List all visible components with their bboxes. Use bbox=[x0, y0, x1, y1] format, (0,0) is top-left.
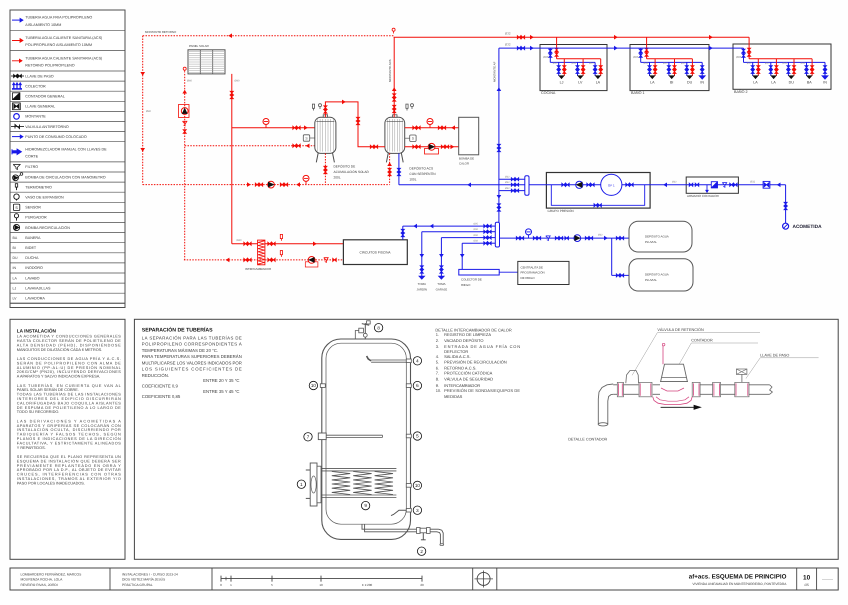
svg-text:INSTALACIONES, TRAMOS AL EXTER: INSTALACIONES, TRAMOS AL EXTERIOR Y/O bbox=[17, 477, 121, 481]
svg-text:TODO SU RECORRIDO.: TODO SU RECORRIDO. bbox=[17, 410, 60, 414]
svg-text:SENSOR: SENSOR bbox=[25, 206, 41, 210]
svg-text:MULTIPLICARSE LOS VALORES INDI: MULTIPLICARSE LOS VALORES INDICADOS POR bbox=[142, 361, 242, 366]
svg-text:CRUCES, INTERFERENCIAS CON OTR: CRUCES, INTERFERENCIAS CON OTRAS bbox=[17, 473, 121, 477]
svg-text:ARMARIO CONTADOR: ARMARIO CONTADOR bbox=[687, 194, 720, 198]
svg-text:10.: 10. bbox=[436, 388, 442, 393]
svg-text:MEDIDAS: MEDIDAS bbox=[444, 394, 463, 399]
svg-text:LA: LA bbox=[650, 81, 655, 85]
svg-text:SALIDA A.C.S.: SALIDA A.C.S. bbox=[444, 354, 470, 359]
svg-text:TERMOMETRO: TERMOMETRO bbox=[25, 185, 52, 189]
svg-text:CONTADOR GENERAL: CONTADOR GENERAL bbox=[25, 95, 64, 99]
svg-text:Y REPARTIDOS.: Y REPARTIDOS. bbox=[17, 446, 46, 450]
svg-text:ALTA DENSIDAD (PEHD), DISPONIÉ: ALTA DENSIDAD (PEHD), DISPONIÉNDOSE bbox=[17, 342, 121, 347]
svg-text:LAS TUBERÍAS EN CUBIERTA QUE: LAS TUBERÍAS EN CUBIERTA QUE VAN AL bbox=[17, 383, 121, 388]
svg-text:Ø32: Ø32 bbox=[505, 187, 510, 190]
svg-text:COLECTOR DE: COLECTOR DE bbox=[461, 277, 482, 281]
svg-text:LA ACOMETIDA Y CONDUCCIONES GE: LA ACOMETIDA Y CONDUCCIONES GENERALES bbox=[17, 335, 121, 339]
svg-text:VÁLVULA DE RETENCIÓN: VÁLVULA DE RETENCIÓN bbox=[657, 327, 704, 332]
svg-text:LV: LV bbox=[578, 81, 583, 85]
svg-text:Ø40: Ø40 bbox=[235, 80, 240, 83]
svg-text:FILTRO: FILTRO bbox=[25, 165, 38, 169]
svg-text:PURGADOR: PURGADOR bbox=[25, 216, 47, 220]
svg-text:TUBERIA AGUA FRIA POLIPROPILEN: TUBERIA AGUA FRIA POLIPROPILENO bbox=[25, 16, 92, 20]
svg-text:REDUCCIÓN.: REDUCCIÓN. bbox=[142, 373, 169, 378]
svg-text:LLAVE DE PASO: LLAVE DE PASO bbox=[25, 74, 53, 78]
svg-text:DUCHA: DUCHA bbox=[25, 256, 39, 260]
svg-text:Ø32: Ø32 bbox=[672, 180, 677, 183]
svg-text:LA INSTALACIÓN: LA INSTALACIÓN bbox=[17, 327, 57, 333]
svg-text:APARATOS Y GRIFERÍAS SE COLOCA: APARATOS Y GRIFERÍAS SE COLOCARÁN CON bbox=[17, 423, 121, 428]
svg-text:IN: IN bbox=[823, 81, 827, 85]
svg-text:SERÁN DE POLIPROPILENO CON ALM: SERÁN DE POLIPROPILENO CON ALMA DE bbox=[17, 360, 121, 365]
svg-text:INTERCAMBIADOR: INTERCAMBIADOR bbox=[245, 267, 271, 271]
svg-text:PREVISIÓN DE RECIRCULACIÓN: PREVISIÓN DE RECIRCULACIÓN bbox=[444, 360, 507, 365]
svg-text:LAVABO: LAVABO bbox=[25, 276, 39, 280]
svg-text:PLUVIAL: PLUVIAL bbox=[645, 278, 657, 282]
svg-text:LJ: LJ bbox=[560, 81, 564, 85]
svg-text:Ø32: Ø32 bbox=[598, 233, 603, 236]
svg-text:Ø32: Ø32 bbox=[505, 31, 511, 35]
svg-text:Ø40: Ø40 bbox=[187, 80, 192, 83]
svg-text:10: 10 bbox=[803, 574, 811, 581]
svg-text:LA SEPARACIÓN PARA LAS TUBERÍA: LA SEPARACIÓN PARA LAS TUBERÍAS DE bbox=[142, 335, 242, 340]
svg-text:DU: DU bbox=[687, 81, 693, 85]
svg-text:CON SERPENTÍN: CON SERPENTÍN bbox=[409, 172, 436, 176]
svg-text:BAÑO 2: BAÑO 2 bbox=[734, 89, 748, 94]
svg-text:PREVIAMENTE REPLANTEADO EN OBR: PREVIAMENTE REPLANTEADO EN OBRA Y bbox=[17, 464, 121, 468]
svg-text:LAS CONDUCCIONES DE AGUA FRÍA: LAS CONDUCCIONES DE AGUA FRÍA Y A.C.S. bbox=[17, 356, 121, 361]
svg-text:Ø32: Ø32 bbox=[473, 228, 478, 231]
svg-text:COLECTOR: COLECTOR bbox=[25, 84, 46, 88]
svg-text:FACULTATIVA, Y ESTRICTAMENTE A: FACULTATIVA, Y ESTRICTAMENTE ALINEADOS bbox=[17, 441, 121, 445]
svg-text:TOMA: TOMA bbox=[437, 282, 445, 286]
svg-text:Ø12: Ø12 bbox=[589, 62, 594, 65]
svg-text:Ø40: Ø40 bbox=[237, 239, 242, 242]
svg-text:BIDET: BIDET bbox=[25, 246, 37, 250]
svg-text:PLANOS E INDICACIONES DE LA DI: PLANOS E INDICACIONES DE LA DIRECCIÓN bbox=[17, 436, 121, 441]
svg-text:SE RECUERDA QUE EL PLANO REPRE: SE RECUERDA QUE EL PLANO REPRESENTA UN bbox=[17, 455, 121, 459]
svg-text:COCINA: COCINA bbox=[541, 91, 556, 95]
svg-text:VALVULA ANTIRETORNO: VALVULA ANTIRETORNO bbox=[25, 125, 69, 129]
svg-text:Ø32: Ø32 bbox=[473, 240, 478, 243]
svg-text:DU: DU bbox=[789, 81, 795, 85]
svg-text:PROGRAMACIÓN: PROGRAMACIÓN bbox=[521, 271, 545, 275]
svg-text:BA: BA bbox=[13, 236, 18, 240]
svg-text:Ø12: Ø12 bbox=[801, 62, 806, 65]
svg-text:MANGUITOS DE DILATACIÓN CADA 6: MANGUITOS DE DILATACIÓN CADA 6 METROS. bbox=[17, 347, 102, 352]
svg-text:DU: DU bbox=[13, 256, 19, 260]
svg-text:2.: 2. bbox=[436, 338, 439, 343]
svg-text:PUNTO DE CONSUMO COLOCADO: PUNTO DE CONSUMO COLOCADO bbox=[25, 135, 87, 139]
svg-text:Ø12: Ø12 bbox=[663, 62, 668, 65]
svg-text:CORTE: CORTE bbox=[25, 155, 38, 159]
svg-text:Ø25: Ø25 bbox=[633, 55, 639, 59]
svg-text:6.: 6. bbox=[436, 365, 439, 370]
svg-text:20KG/CM² (PN20), INCLUYENDO DE: 20KG/CM² (PN20), INCLUYENDO DERIVACIONES bbox=[17, 370, 121, 374]
svg-text:DE ESPUMA DE POLIETILENO A LO: DE ESPUMA DE POLIETILENO A LO LARGO DE bbox=[17, 406, 121, 410]
svg-text:IN: IN bbox=[13, 266, 17, 270]
svg-text:RIEGO: RIEGO bbox=[461, 283, 471, 287]
svg-text:APROBADO POR LA D.F., AL OBJET: APROBADO POR LA D.F., AL OBJETO DE EVITA… bbox=[17, 468, 121, 472]
svg-text:COEFICIENTE 0,9: COEFICIENTE 0,9 bbox=[142, 384, 179, 389]
svg-text:TEMPERATURAS MÁXIMAS DE 20 °C.: TEMPERATURAS MÁXIMAS DE 20 °C. bbox=[142, 348, 218, 353]
svg-text:af+acs. ESQUEMA DE PRINCIPIO: af+acs. ESQUEMA DE PRINCIPIO bbox=[689, 573, 787, 580]
svg-text:DIOS VEITEZ MARÍA JESÚS: DIOS VEITEZ MARÍA JESÚS bbox=[122, 578, 166, 582]
svg-text:DEPÓSITO AGUA: DEPÓSITO AGUA bbox=[645, 273, 669, 277]
svg-text:INODORO: INODORO bbox=[25, 266, 43, 270]
svg-text:ENTRE 35 Y 45 °C: ENTRE 35 Y 45 °C bbox=[203, 389, 239, 394]
svg-text:TODAS LAS TUBERÍAS DE LAS INST: TODAS LAS TUBERÍAS DE LAS INSTALACIONES bbox=[17, 392, 121, 397]
svg-text:ENTRE 20 Y 35 °C: ENTRE 20 Y 35 °C bbox=[203, 378, 239, 383]
svg-text:HASTA COLECTOR SERÁN DE POLIET: HASTA COLECTOR SERÁN DE POLIETILENO DE bbox=[17, 338, 121, 343]
svg-text:Ø12: Ø12 bbox=[553, 62, 558, 65]
svg-text:DEPÓSITO AGUA: DEPÓSITO AGUA bbox=[645, 235, 669, 239]
svg-text:GRUPO PRESIÓN: GRUPO PRESIÓN bbox=[548, 209, 574, 213]
svg-text:TABIQUERÍA Y FALSOS TECHOS, SE: TABIQUERÍA Y FALSOS TECHOS, SEGÚN bbox=[17, 432, 121, 437]
svg-text:Ø32: Ø32 bbox=[750, 181, 755, 184]
svg-text:PLUVIAL: PLUVIAL bbox=[645, 240, 657, 244]
svg-text:HIDROMEZCLADOR MANUAL CON LLAV: HIDROMEZCLADOR MANUAL CON LLAVES DE bbox=[25, 147, 107, 151]
svg-text:LA: LA bbox=[753, 81, 758, 85]
svg-text:4.: 4. bbox=[436, 354, 439, 359]
svg-text:Ø25: Ø25 bbox=[736, 55, 742, 59]
svg-text:MOURENZA ROCHA, LOLA: MOURENZA ROCHA, LOLA bbox=[21, 578, 64, 582]
svg-text:GP 1: GP 1 bbox=[608, 183, 615, 187]
svg-text:BAÑO 1: BAÑO 1 bbox=[631, 90, 645, 95]
svg-text:POLIPROPILENO AISLAMIENTO 10MM: POLIPROPILENO AISLAMIENTO 10MM bbox=[25, 43, 92, 47]
svg-text:CIRCUITOS PISCINA: CIRCUITOS PISCINA bbox=[359, 251, 391, 255]
svg-text:BI: BI bbox=[13, 246, 16, 250]
svg-text:RETORNO POLIPROPILENO: RETORNO POLIPROPILENO bbox=[25, 64, 74, 68]
svg-text:PANEL SOLAR: PANEL SOLAR bbox=[189, 44, 209, 48]
svg-text:REGISTRO DE LIMPIEZA: REGISTRO DE LIMPIEZA bbox=[444, 332, 491, 337]
svg-text:7.: 7. bbox=[436, 371, 439, 376]
svg-text:LA: LA bbox=[13, 276, 18, 280]
svg-text:VIVIENDA UNIFAMILIAR EN MONTEP: VIVIENDA UNIFAMILIAR EN MONTEPORREIRO, P… bbox=[692, 582, 787, 586]
svg-text:10: 10 bbox=[319, 583, 323, 587]
svg-text:ALUMINIO (PP-AL-U) DE PRESIÓN: ALUMINIO (PP-AL-U) DE PRESIÓN NOMINAL bbox=[17, 365, 121, 370]
svg-text:20: 20 bbox=[420, 583, 424, 587]
svg-text:BA: BA bbox=[807, 81, 812, 85]
svg-text:1.: 1. bbox=[436, 332, 439, 337]
svg-text:/25: /25 bbox=[804, 583, 809, 587]
svg-text:INSTALACIÓN OCULTA, DISCURRIEN: INSTALACIÓN OCULTA, DISCURRIENDO POR bbox=[17, 427, 121, 432]
svg-text:10: 10 bbox=[311, 383, 317, 388]
svg-text:3.: 3. bbox=[436, 344, 439, 349]
svg-text:Ø12: Ø12 bbox=[572, 62, 577, 65]
svg-text:DE RIEGO: DE RIEGO bbox=[521, 276, 536, 280]
svg-text:LV: LV bbox=[13, 297, 18, 301]
svg-text:BOMBA RECIRCULACION: BOMBA RECIRCULACION bbox=[25, 226, 70, 230]
svg-text:VACIADO DEPÓSITO: VACIADO DEPÓSITO bbox=[444, 338, 483, 343]
svg-text:PREVISIÓN DE SONDAS/EQUIPOS DE: PREVISIÓN DE SONDAS/EQUIPOS DE bbox=[444, 388, 520, 393]
svg-text:Ø25: Ø25 bbox=[473, 223, 478, 226]
svg-text:CALORIFUGADAS BAJO COQUILLA AI: CALORIFUGADAS BAJO COQUILLA AISLANTES bbox=[17, 401, 121, 405]
svg-text:LAVAVAJILLAS: LAVAVAJILLAS bbox=[25, 286, 51, 290]
svg-text:VASO DE EXPANSION: VASO DE EXPANSION bbox=[25, 196, 64, 200]
svg-text:10: 10 bbox=[415, 483, 421, 488]
svg-text:MONTANTE RETORNO: MONTANTE RETORNO bbox=[145, 30, 177, 34]
svg-text:POLIPROPILENO CORRESPONDIENTES: POLIPROPILENO CORRESPONDIENTES A bbox=[142, 342, 242, 347]
svg-text:AISLAMIENTO 10MM: AISLAMIENTO 10MM bbox=[25, 23, 61, 27]
svg-text:LJ: LJ bbox=[13, 286, 17, 290]
svg-text:LA: LA bbox=[596, 81, 601, 85]
svg-text:Ø12: Ø12 bbox=[782, 62, 787, 65]
svg-text:LOS SIGUIENTES COEFICIENTES DE: LOS SIGUIENTES COEFICIENTES DE bbox=[142, 367, 242, 372]
svg-text:MONTANTE: MONTANTE bbox=[25, 115, 46, 119]
svg-text:Ø40: Ø40 bbox=[146, 110, 151, 113]
svg-text:LLAVE GENERAL: LLAVE GENERAL bbox=[25, 105, 55, 109]
svg-text:INTERIORES DEL EDIFICIO DISCUR: INTERIORES DEL EDIFICIO DISCURRIRÁN bbox=[17, 396, 121, 401]
svg-text:E 1:200: E 1:200 bbox=[362, 583, 373, 587]
svg-text:Ø12: Ø12 bbox=[644, 62, 649, 65]
svg-text:PRÁCTICA GRUPAL: PRÁCTICA GRUPAL bbox=[122, 583, 153, 587]
svg-text:TUBERIA AGUA CALIENTE SANITARI: TUBERIA AGUA CALIENTE SANITARIA (ACS) bbox=[25, 36, 102, 40]
svg-text:TUBERIA AGUA CALIENTE SANITARI: TUBERIA AGUA CALIENTE SANITARIA (ACS) bbox=[25, 56, 102, 60]
svg-text:CALOR: CALOR bbox=[459, 162, 469, 166]
svg-text:BOMBA DE CIRCULACION CON MANOM: BOMBA DE CIRCULACION CON MANOMETRO bbox=[25, 175, 105, 179]
svg-text:LOMBARDERO FERNÁNDEZ, MARCOS: LOMBARDERO FERNÁNDEZ, MARCOS bbox=[21, 572, 83, 576]
svg-text:PANEL SOLAR SERÁN DE COBRE.: PANEL SOLAR SERÁN DE COBRE. bbox=[17, 387, 79, 392]
svg-text:CENTRALITA DE: CENTRALITA DE bbox=[521, 265, 544, 269]
svg-text:JARDÍN: JARDÍN bbox=[417, 288, 427, 292]
svg-text:LLAVE DE PASO: LLAVE DE PASO bbox=[760, 353, 789, 357]
svg-text:200L: 200L bbox=[334, 176, 341, 180]
svg-text:BANERA: BANERA bbox=[25, 236, 41, 240]
svg-text:Ø12: Ø12 bbox=[765, 62, 770, 65]
svg-text:5.: 5. bbox=[436, 360, 439, 365]
svg-text:LAVADORA: LAVADORA bbox=[25, 297, 45, 301]
svg-text:ACOMETIDA: ACOMETIDA bbox=[793, 224, 823, 230]
svg-text:BOMBA DE: BOMBA DE bbox=[459, 157, 474, 161]
svg-text:DETALLE CONTADOR: DETALLE CONTADOR bbox=[568, 438, 607, 442]
svg-text:GARAJE: GARAJE bbox=[436, 288, 448, 292]
svg-text:BI: BI bbox=[670, 81, 673, 85]
svg-text:PASO POR LOCALES INADECUADOS.: PASO POR LOCALES INADECUADOS. bbox=[17, 481, 85, 485]
svg-text:COEFICIENTE 0,85: COEFICIENTE 0,85 bbox=[142, 394, 181, 399]
svg-text:A APARATOS Y SALVO INDICACIÓN: A APARATOS Y SALVO INDICACIÓN EXPRESA. bbox=[17, 374, 101, 379]
svg-text:REVEIRO RIVAS, JORDI: REVEIRO RIVAS, JORDI bbox=[21, 583, 58, 587]
svg-text:Ø32: Ø32 bbox=[505, 181, 510, 184]
svg-text:PARA TEMPERATURAS SUPERIORES D: PARA TEMPERATURAS SUPERIORES DEBERÁN bbox=[142, 354, 242, 359]
svg-text:MONTANTE AF: MONTANTE AF bbox=[493, 61, 497, 82]
svg-text:RETORNO A.C.S.: RETORNO A.C.S. bbox=[444, 365, 476, 370]
svg-text:PROTECCIÓN CATÓDICA: PROTECCIÓN CATÓDICA bbox=[444, 371, 492, 376]
svg-text:SEPARACIÓN DE TUBERÍAS: SEPARACIÓN DE TUBERÍAS bbox=[142, 327, 213, 334]
svg-text:Ø32: Ø32 bbox=[505, 42, 511, 46]
svg-text:Ø12: Ø12 bbox=[747, 62, 752, 65]
svg-text:Ø32: Ø32 bbox=[505, 176, 510, 179]
svg-text:Ø32: Ø32 bbox=[473, 234, 478, 237]
svg-text:DEPÓSITO DE: DEPÓSITO DE bbox=[334, 165, 356, 169]
svg-text:MONTANTE ACS: MONTANTE ACS bbox=[388, 59, 392, 82]
svg-text:Ø25: Ø25 bbox=[543, 55, 549, 59]
svg-text:ESQUEMA DE INSTALACIÓN QUE DEB: ESQUEMA DE INSTALACIÓN QUE DEBERÁ SER bbox=[17, 458, 121, 463]
svg-text:100L: 100L bbox=[409, 178, 416, 182]
svg-text:CONTADOR: CONTADOR bbox=[691, 339, 713, 343]
svg-text:Ø12: Ø12 bbox=[681, 62, 686, 65]
svg-text:DEPÓSITO ACS: DEPÓSITO ACS bbox=[409, 167, 433, 171]
svg-text:ACUMULACIÓN SOLAR: ACUMULACIÓN SOLAR bbox=[334, 170, 370, 174]
svg-text:VÁLVULA DE SEGURIDAD: VÁLVULA DE SEGURIDAD bbox=[444, 377, 493, 382]
svg-text:TOMA: TOMA bbox=[418, 282, 426, 286]
svg-text:8.: 8. bbox=[436, 377, 439, 382]
svg-text:LA: LA bbox=[771, 81, 776, 85]
svg-text:IN: IN bbox=[700, 81, 704, 85]
svg-text:INSTALACIONES I - CURSO 2023-2: INSTALACIONES I - CURSO 2023-24 bbox=[122, 572, 178, 576]
